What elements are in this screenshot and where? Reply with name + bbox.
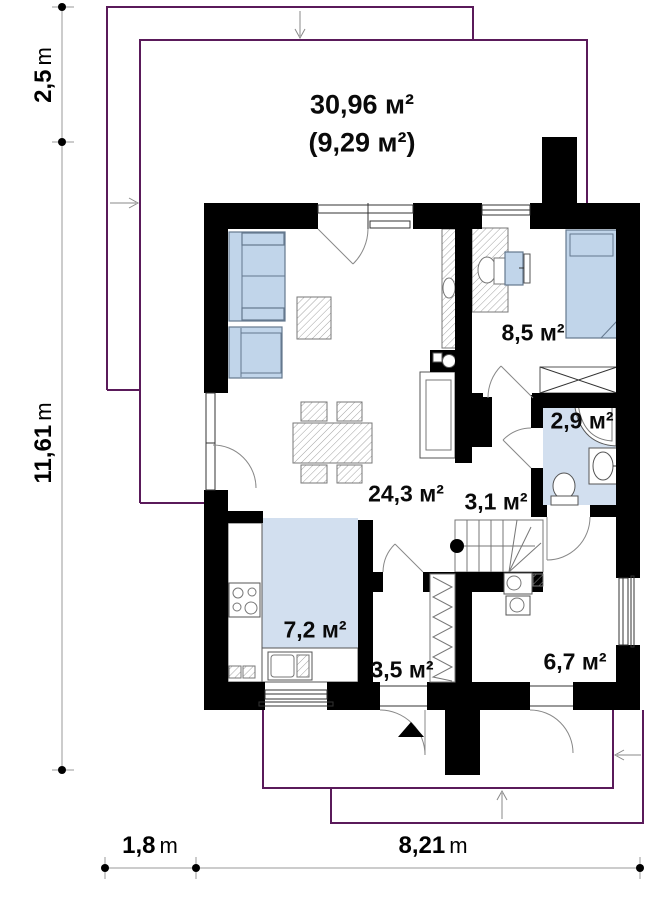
stove (229, 583, 260, 617)
offset-arrow-top (295, 11, 305, 38)
chair (301, 402, 327, 421)
dimension-left-total: 11,61m (30, 402, 58, 483)
hall-inner-door (547, 517, 590, 560)
chair (337, 465, 362, 483)
wardrobe (540, 367, 617, 393)
dimension-unit: m (160, 833, 178, 859)
shelf-console (442, 229, 456, 348)
staircase (450, 520, 543, 572)
dimension-unit: m (449, 833, 467, 859)
coffee-table (297, 297, 331, 339)
room-area-label-hall: 6,7 м² (543, 649, 606, 676)
sofa (229, 232, 285, 321)
bedroom-window (482, 205, 530, 215)
stair-newel-post (450, 539, 464, 553)
roof-area-label-secondary: (9,29 м²) (309, 128, 416, 159)
monitor (524, 254, 530, 283)
room-area-label-vestibule: 3,5 м² (370, 657, 433, 684)
dimension-bottom-total: 8,21m (398, 832, 467, 860)
chair (337, 402, 362, 421)
floor-cabinet (229, 666, 241, 678)
offset-arrow-left (110, 198, 138, 208)
dimension-bottom-left: 1,8m (122, 832, 178, 860)
room-area-label-hallway: 3,1 м² (464, 489, 527, 516)
keyboard (494, 258, 505, 284)
room-area-label-bedroom: 8,5 м² (501, 320, 564, 347)
bedroom-door (488, 366, 533, 398)
entrance-arrow (398, 722, 424, 737)
boiler (506, 596, 530, 615)
dimension-value: 11,61 (30, 425, 58, 484)
hall-window (619, 576, 634, 647)
bathroom-door (503, 428, 531, 468)
room-area-label-living: 24,3 м² (368, 481, 444, 508)
vestibule-door (383, 544, 423, 572)
dimension-unit: m (31, 47, 57, 65)
floor-cabinet (243, 666, 255, 678)
entrance-door (380, 686, 427, 755)
chimney (542, 137, 577, 203)
offset-arrow-right (615, 750, 641, 760)
dimension-value: 1,8 (122, 832, 155, 860)
desk-chair (478, 257, 496, 283)
kitchen-sink (268, 652, 312, 680)
porch-pillar (445, 710, 480, 775)
kitchen-window (259, 690, 333, 706)
floor-plan: 30,96 м² (9,29 м²) 24,3 м² 8,5 м² 2,9 м²… (0, 0, 655, 924)
vestibule-closet (430, 574, 455, 682)
dining-set (293, 402, 372, 483)
bedroom-furniture (472, 228, 617, 393)
bed (566, 230, 617, 338)
living-room-furniture (229, 229, 460, 483)
hall-porch-door (530, 686, 573, 753)
offset-arrow-bottom (497, 791, 507, 819)
dimension-left-upper: 2,5m (30, 47, 58, 103)
side-terrace-door (206, 393, 256, 490)
dimension-value: 2,5 (30, 69, 58, 102)
room-area-label-bathroom: 2,9 м² (550, 408, 613, 435)
room-area-label-kitchen: 7,2 м² (283, 617, 346, 644)
armchair (229, 327, 282, 378)
chair (301, 465, 327, 483)
living-terrace-door (318, 203, 413, 264)
sink (589, 448, 620, 484)
roof-area-label-primary: 30,96 м² (310, 90, 414, 121)
tv-unit (420, 372, 455, 458)
dimension-unit: m (31, 402, 57, 420)
dining-table (293, 423, 372, 463)
dimension-value: 8,21 (398, 832, 445, 860)
